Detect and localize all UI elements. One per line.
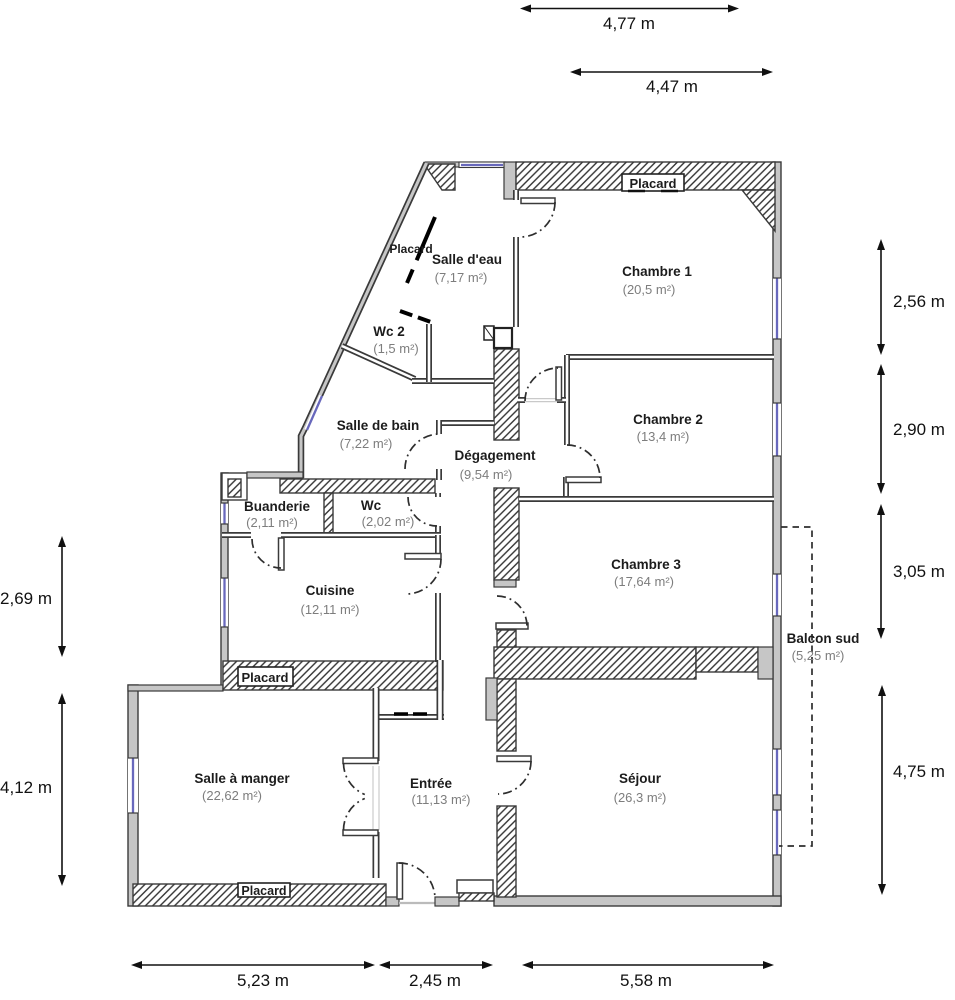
svg-text:(13,4 m²): (13,4 m²) [637,429,690,444]
svg-text:Placard: Placard [241,884,286,898]
svg-text:4,12 m: 4,12 m [0,778,52,797]
svg-text:(7,22 m²): (7,22 m²) [340,436,393,451]
svg-text:Buanderie: Buanderie [244,499,311,514]
svg-text:(17,64 m²): (17,64 m²) [614,574,674,589]
svg-text:(5,25 m²): (5,25 m²) [792,648,845,663]
svg-text:5,58 m: 5,58 m [620,971,672,990]
svg-text:Chambre 2: Chambre 2 [633,412,703,427]
svg-text:Wc 2: Wc 2 [373,324,405,339]
svg-text:Balcon sud: Balcon sud [787,631,860,646]
svg-text:(22,62 m²): (22,62 m²) [202,788,262,803]
svg-text:Chambre 1: Chambre 1 [622,264,692,279]
svg-text:Placard: Placard [389,242,432,256]
svg-text:(2,02 m²): (2,02 m²) [362,514,415,529]
svg-text:2,69 m: 2,69 m [0,589,52,608]
svg-text:Placard: Placard [630,176,677,191]
svg-text:4,77 m: 4,77 m [603,14,655,33]
svg-text:Salle d'eau: Salle d'eau [432,252,502,267]
svg-text:Dégagement: Dégagement [454,448,536,463]
svg-text:(9,54 m²): (9,54 m²) [460,467,513,482]
svg-text:(1,5 m²): (1,5 m²) [373,341,419,356]
svg-text:4,47 m: 4,47 m [646,77,698,96]
svg-text:(20,5 m²): (20,5 m²) [623,282,676,297]
svg-text:(11,13 m²): (11,13 m²) [412,792,471,807]
svg-text:Wc: Wc [361,498,382,513]
svg-text:Placard: Placard [242,670,289,685]
svg-text:2,56 m: 2,56 m [893,292,945,311]
svg-text:(2,11 m²): (2,11 m²) [246,515,298,530]
svg-text:Salle à manger: Salle à manger [194,771,290,786]
svg-text:Cuisine: Cuisine [306,583,355,598]
svg-text:Chambre 3: Chambre 3 [611,557,681,572]
svg-text:(26,3 m²): (26,3 m²) [614,790,667,805]
svg-text:Salle de bain: Salle de bain [337,418,420,433]
svg-text:2,90 m: 2,90 m [893,420,945,439]
svg-text:3,05 m: 3,05 m [893,562,945,581]
svg-text:2,45 m: 2,45 m [409,971,461,990]
svg-text:(12,11 m²): (12,11 m²) [301,602,360,617]
svg-text:Séjour: Séjour [619,771,662,786]
svg-text:Entrée: Entrée [410,776,453,791]
svg-text:4,75 m: 4,75 m [893,762,945,781]
svg-text:5,23 m: 5,23 m [237,971,289,990]
svg-text:(7,17 m²): (7,17 m²) [435,270,488,285]
